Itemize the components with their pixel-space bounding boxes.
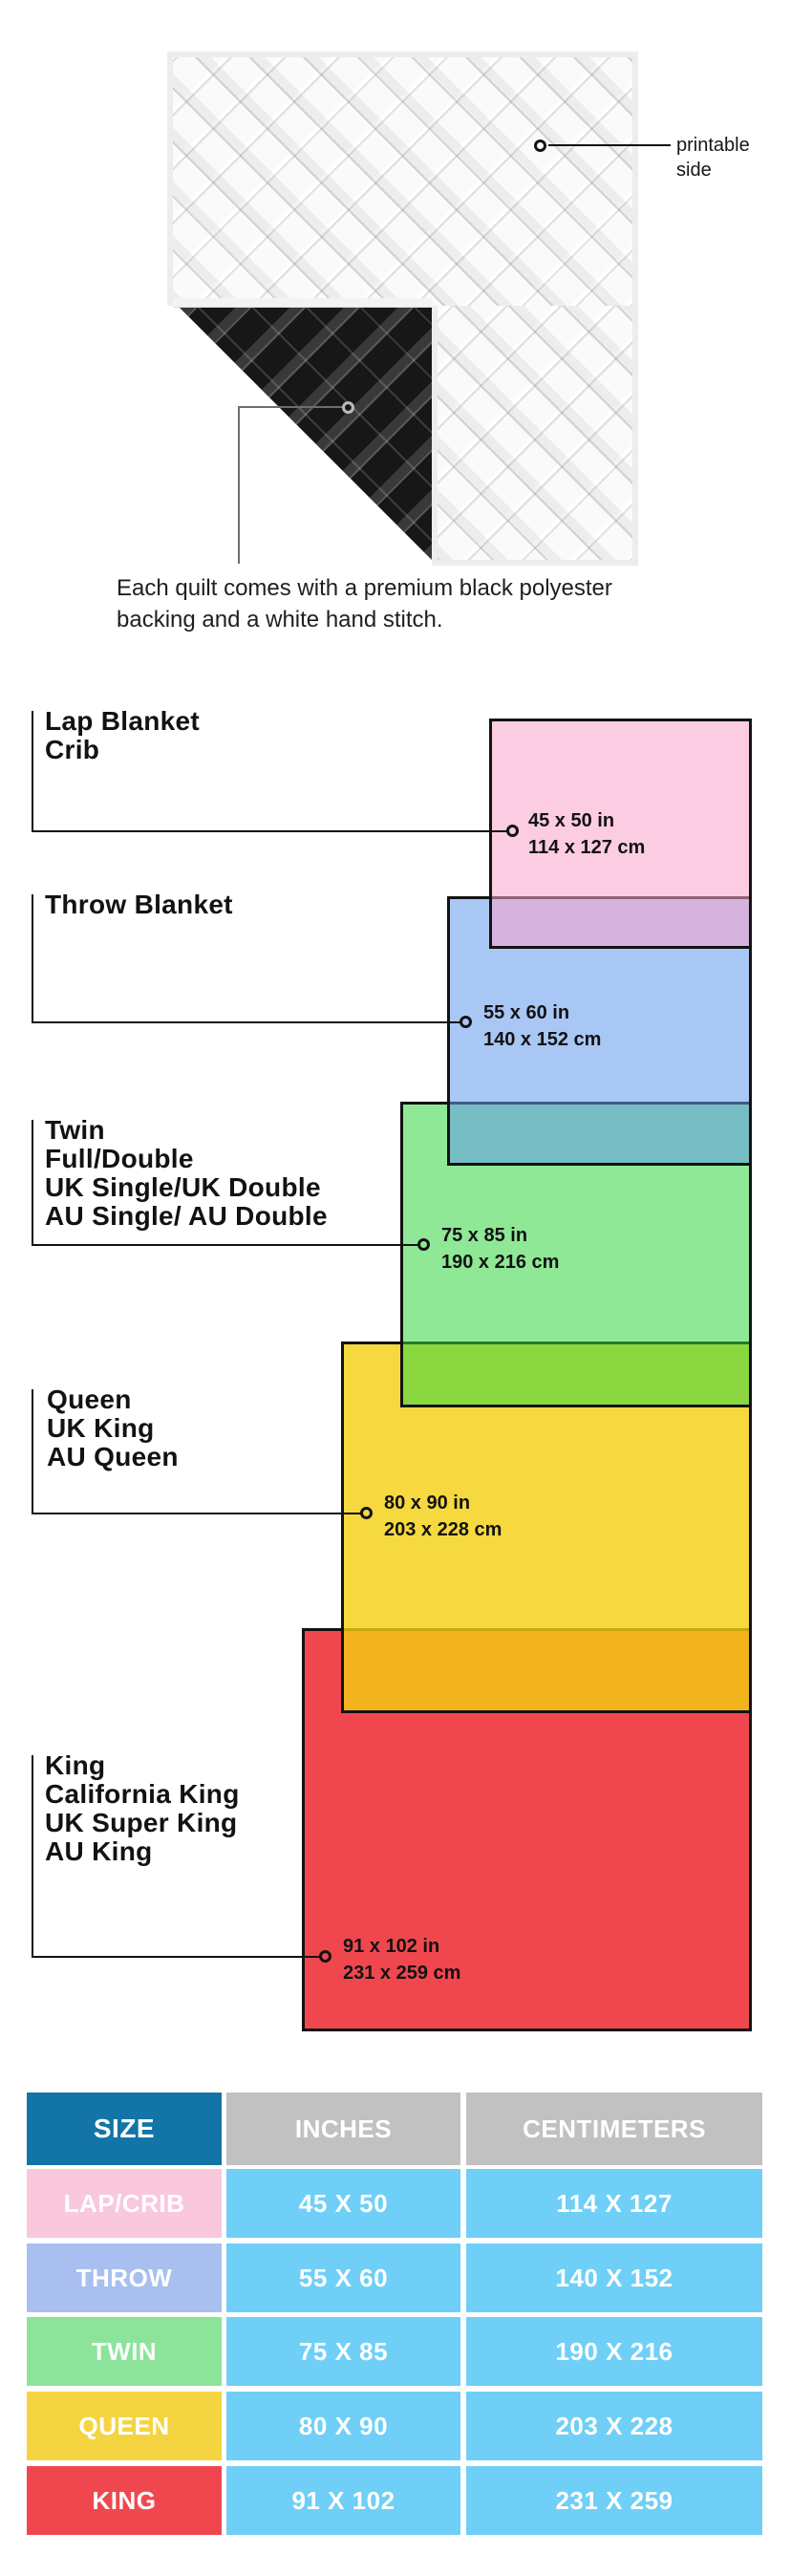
quilt-black-backing (180, 308, 432, 560)
table-row-twin-size: TWIN (27, 2317, 222, 2386)
marker-throw-icon (460, 1016, 472, 1028)
dims-cm: 231 x 259 cm (343, 1960, 460, 1986)
quilt-caption-line1: Each quilt comes with a premium black po… (117, 572, 612, 604)
label-line: Crib (45, 736, 200, 764)
printable-side-label-line1: printable (676, 133, 750, 158)
label-line: UK King (47, 1414, 179, 1443)
connector-queen-h (32, 1513, 362, 1514)
printable-side-label-line2: side (676, 158, 750, 182)
quilt-front-right (432, 306, 638, 566)
marker-twin-icon (417, 1238, 430, 1251)
dims-inches: 55 x 60 in (483, 999, 601, 1026)
quilt-size-infographic: printable side Each quilt comes with a p… (0, 0, 791, 2576)
table-row-lap-size: LAP/CRIB (27, 2169, 222, 2238)
table-row-lap-inches: 45 X 50 (226, 2169, 460, 2238)
connector-king-h (32, 1956, 321, 1958)
quilt-fold-strip (173, 298, 432, 308)
label-line: King (45, 1751, 240, 1780)
dims-cm: 190 x 216 cm (441, 1249, 559, 1276)
label-line: California King (45, 1780, 240, 1809)
label-twin: Twin Full/Double UK Single/UK Double AU … (45, 1116, 328, 1231)
connector-twin-h (32, 1244, 419, 1246)
table-row-king-cm: 231 X 259 (466, 2466, 762, 2535)
printable-side-marker-icon (534, 140, 546, 152)
connector-lap-v (32, 711, 33, 832)
dims-inches: 45 x 50 in (528, 807, 645, 834)
connector-throw-h (32, 1021, 461, 1023)
marker-king-icon (319, 1950, 331, 1963)
dims-inches: 75 x 85 in (441, 1222, 559, 1249)
table-row-king-inches: 91 X 102 (226, 2466, 460, 2535)
marker-queen-icon (360, 1507, 373, 1519)
dims-queen: 80 x 90 in 203 x 228 cm (384, 1490, 502, 1543)
backing-leader-line-h (239, 406, 344, 408)
label-line: AU Single/ AU Double (45, 1202, 328, 1231)
label-line: Queen (47, 1385, 179, 1414)
quilt-caption-line2: backing and a white hand stitch. (117, 604, 612, 635)
label-line: UK Super King (45, 1809, 240, 1837)
dims-cm: 114 x 127 cm (528, 834, 645, 861)
table-row-queen-inches: 80 X 90 (226, 2392, 460, 2460)
connector-twin-v (32, 1120, 33, 1246)
table-header-inches: INCHES (226, 2093, 460, 2165)
connector-king-v (32, 1755, 33, 1958)
printable-side-label: printable side (676, 133, 750, 182)
label-line: Throw Blanket (45, 891, 233, 919)
table-row-throw-inches: 55 X 60 (226, 2243, 460, 2312)
backing-leader-line-v (238, 406, 240, 564)
marker-lap-icon (506, 825, 519, 837)
quilt-caption: Each quilt comes with a premium black po… (117, 572, 612, 635)
label-queen: Queen UK King AU Queen (47, 1385, 179, 1471)
table-row-twin-cm: 190 X 216 (466, 2317, 762, 2386)
label-line: AU Queen (47, 1443, 179, 1471)
dims-inches: 80 x 90 in (384, 1490, 502, 1516)
quilt-front-top (167, 52, 638, 306)
dims-king: 91 x 102 in 231 x 259 cm (343, 1933, 460, 1986)
connector-queen-v (32, 1389, 33, 1514)
label-line: Full/Double (45, 1145, 328, 1173)
dims-twin: 75 x 85 in 190 x 216 cm (441, 1222, 559, 1276)
table-row-lap-cm: 114 X 127 (466, 2169, 762, 2238)
table-header-size: SIZE (27, 2093, 222, 2165)
printable-side-leader-line (548, 144, 671, 146)
table-header-centimeters: CENTIMETERS (466, 2093, 762, 2165)
label-line: AU King (45, 1837, 240, 1866)
dims-lap: 45 x 50 in 114 x 127 cm (528, 807, 645, 861)
connector-lap-h (32, 830, 508, 832)
table-row-throw-cm: 140 X 152 (466, 2243, 762, 2312)
dims-throw: 55 x 60 in 140 x 152 cm (483, 999, 601, 1053)
table-row-twin-inches: 75 X 85 (226, 2317, 460, 2386)
dims-inches: 91 x 102 in (343, 1933, 460, 1960)
backing-marker-icon (342, 401, 354, 414)
label-lap-crib: Lap Blanket Crib (45, 707, 200, 764)
table-row-queen-size: QUEEN (27, 2392, 222, 2460)
table-row-king-size: KING (27, 2466, 222, 2535)
dims-cm: 203 x 228 cm (384, 1516, 502, 1543)
label-throw: Throw Blanket (45, 891, 233, 919)
dims-cm: 140 x 152 cm (483, 1026, 601, 1053)
label-line: Twin (45, 1116, 328, 1145)
connector-throw-v (32, 894, 33, 1023)
table-row-throw-size: THROW (27, 2243, 222, 2312)
label-line: UK Single/UK Double (45, 1173, 328, 1202)
table-row-queen-cm: 203 X 228 (466, 2392, 762, 2460)
label-line: Lap Blanket (45, 707, 200, 736)
label-king: King California King UK Super King AU Ki… (45, 1751, 240, 1866)
